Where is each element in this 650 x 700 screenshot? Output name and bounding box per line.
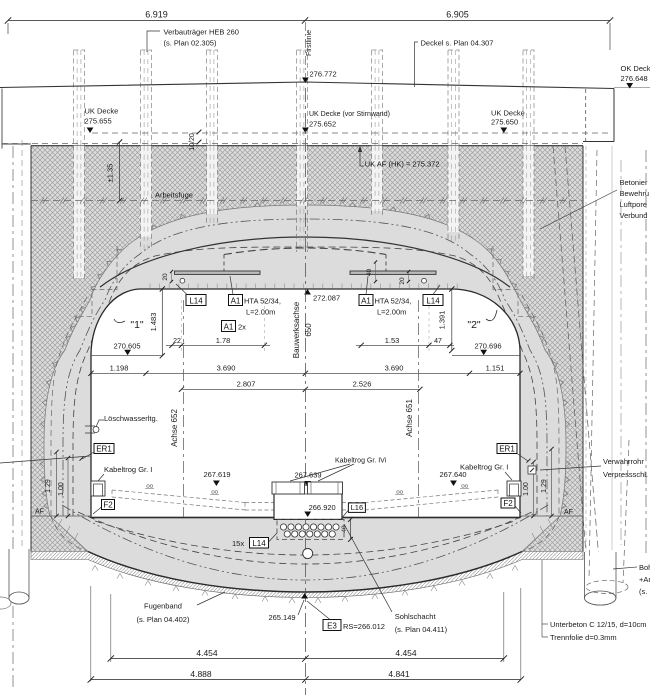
svg-text:Verpressschl.: Verpressschl. bbox=[603, 470, 648, 479]
svg-text:Achse 651: Achse 651 bbox=[405, 399, 414, 437]
svg-text:275.652: 275.652 bbox=[309, 120, 336, 129]
svg-text:275.650: 275.650 bbox=[491, 118, 518, 127]
svg-text:(s. Plan 04.402): (s. Plan 04.402) bbox=[137, 615, 190, 624]
svg-text:20: 20 bbox=[399, 277, 406, 285]
svg-text:F2: F2 bbox=[103, 500, 113, 509]
svg-text:15x: 15x bbox=[232, 539, 244, 548]
svg-text:Bewehru: Bewehru bbox=[620, 189, 650, 198]
svg-text:4.888: 4.888 bbox=[190, 669, 212, 679]
svg-text:AF: AF bbox=[564, 509, 573, 516]
svg-text:Unterbeton C 12/15, d=10cm: Unterbeton C 12/15, d=10cm bbox=[550, 620, 647, 629]
svg-text:22: 22 bbox=[173, 338, 181, 345]
svg-text:1.00: 1.00 bbox=[523, 482, 530, 496]
svg-text:+Anker: +Anker bbox=[639, 575, 650, 584]
svg-text:267.639: 267.639 bbox=[294, 471, 321, 480]
svg-text:6.905: 6.905 bbox=[446, 10, 469, 20]
svg-text:Verbauträger HEB 260: Verbauträger HEB 260 bbox=[164, 28, 239, 37]
svg-text:Achse 652: Achse 652 bbox=[170, 409, 179, 447]
svg-text:2.807: 2.807 bbox=[237, 380, 256, 389]
svg-text:275.655: 275.655 bbox=[85, 117, 112, 126]
svg-text:A1: A1 bbox=[231, 296, 241, 305]
svg-text:Deckel s. Plan 04.307: Deckel s. Plan 04.307 bbox=[421, 39, 494, 48]
svg-text:4.841: 4.841 bbox=[388, 669, 410, 679]
svg-text:276.772: 276.772 bbox=[310, 70, 337, 79]
svg-text:Verwahrrohr: Verwahrrohr bbox=[603, 457, 644, 466]
svg-text:47: 47 bbox=[434, 338, 442, 345]
svg-text:A1: A1 bbox=[224, 322, 234, 331]
svg-text:Verbund: Verbund bbox=[620, 211, 648, 220]
svg-text:650: 650 bbox=[304, 323, 313, 337]
svg-text:1.391: 1.391 bbox=[438, 311, 447, 330]
svg-text:Betonier: Betonier bbox=[620, 178, 648, 187]
svg-text:(s. Pla: (s. Pla bbox=[639, 587, 650, 596]
svg-text:267.640: 267.640 bbox=[439, 470, 466, 479]
svg-text:10/20: 10/20 bbox=[189, 133, 196, 151]
svg-text:(s. Plan 02.305): (s. Plan 02.305) bbox=[164, 39, 217, 48]
svg-text:276.648: 276.648 bbox=[621, 74, 648, 83]
svg-text:1.78: 1.78 bbox=[216, 336, 231, 345]
svg-text:"1": "1" bbox=[130, 319, 144, 331]
svg-text:Bauwerksachse: Bauwerksachse bbox=[292, 301, 301, 358]
svg-text:A1: A1 bbox=[361, 296, 371, 305]
svg-text:267.619: 267.619 bbox=[203, 470, 230, 479]
svg-text:Kabeltrog Gr. I: Kabeltrog Gr. I bbox=[460, 463, 508, 472]
svg-text:AF: AF bbox=[35, 509, 44, 516]
svg-text:E3: E3 bbox=[327, 621, 337, 630]
svg-text:L=2.00m: L=2.00m bbox=[377, 308, 406, 317]
svg-text:1.29: 1.29 bbox=[45, 479, 52, 493]
svg-text:Arbeitsfuge: Arbeitsfuge bbox=[155, 191, 193, 200]
svg-text:ER1: ER1 bbox=[96, 444, 112, 453]
svg-text:±1.35: ±1.35 bbox=[106, 164, 115, 183]
svg-text:40: 40 bbox=[366, 269, 373, 277]
svg-text:L14: L14 bbox=[252, 539, 266, 548]
svg-text:RS=266.012: RS=266.012 bbox=[343, 622, 385, 631]
svg-text:272.087: 272.087 bbox=[313, 294, 340, 303]
svg-text:3.690: 3.690 bbox=[217, 364, 236, 373]
svg-text:2x: 2x bbox=[238, 323, 246, 332]
svg-text:OK Decke: OK Decke bbox=[621, 64, 650, 73]
svg-text:6.919: 6.919 bbox=[145, 10, 168, 20]
svg-text:1.151: 1.151 bbox=[486, 364, 505, 373]
svg-text:2.526: 2.526 bbox=[353, 380, 372, 389]
svg-text:1.483: 1.483 bbox=[149, 313, 158, 332]
svg-text:UK AF (HK) = 275.372: UK AF (HK) = 275.372 bbox=[365, 160, 440, 169]
svg-text:L14: L14 bbox=[189, 296, 203, 305]
svg-text:Luftpore: Luftpore bbox=[620, 200, 648, 209]
svg-text:270.696: 270.696 bbox=[474, 342, 501, 351]
svg-text:Löschwasserltg.: Löschwasserltg. bbox=[104, 414, 158, 423]
svg-text:Kabeltrog Gr. I: Kabeltrog Gr. I bbox=[104, 465, 152, 474]
svg-text:Trennfolie d=0.3mm: Trennfolie d=0.3mm bbox=[550, 633, 617, 642]
svg-text:Kabeltrog Gr. IVi: Kabeltrog Gr. IVi bbox=[335, 458, 387, 465]
svg-text:Bohrpf: Bohrpf bbox=[639, 563, 650, 572]
svg-text:UK Decke: UK Decke bbox=[85, 107, 119, 116]
svg-text:ER1: ER1 bbox=[499, 444, 515, 453]
svg-text:20: 20 bbox=[162, 273, 169, 281]
svg-text:UK Decke (vor Stirnwand): UK Decke (vor Stirnwand) bbox=[309, 111, 390, 118]
svg-text:1.198: 1.198 bbox=[110, 364, 129, 373]
svg-text:265.149: 265.149 bbox=[268, 613, 295, 622]
svg-text:1.29: 1.29 bbox=[541, 479, 548, 493]
svg-text:Firstlinie: Firstlinie bbox=[306, 30, 313, 56]
svg-text:HTA 52/34,: HTA 52/34, bbox=[375, 297, 412, 306]
svg-text:1.00: 1.00 bbox=[58, 482, 65, 496]
svg-text:L14: L14 bbox=[426, 296, 440, 305]
svg-text:L16: L16 bbox=[351, 503, 364, 512]
svg-text:(s. Plan 04.411): (s. Plan 04.411) bbox=[395, 625, 448, 634]
svg-text:270.605: 270.605 bbox=[113, 342, 140, 351]
svg-text:L=2.00m: L=2.00m bbox=[246, 308, 275, 317]
svg-text:Sohlschacht: Sohlschacht bbox=[395, 612, 437, 621]
svg-text:4.454: 4.454 bbox=[395, 648, 417, 658]
svg-text:HTA 52/34,: HTA 52/34, bbox=[244, 297, 281, 306]
svg-text:F2: F2 bbox=[503, 499, 513, 508]
svg-text:266.920: 266.920 bbox=[309, 503, 336, 512]
svg-text:UK Decke: UK Decke bbox=[491, 109, 525, 118]
svg-text:3.690: 3.690 bbox=[385, 364, 404, 373]
svg-text:Fugenband: Fugenband bbox=[144, 602, 182, 611]
svg-text:1.53: 1.53 bbox=[385, 336, 400, 345]
svg-text:"2": "2" bbox=[467, 319, 481, 331]
svg-text:4.454: 4.454 bbox=[196, 648, 218, 658]
